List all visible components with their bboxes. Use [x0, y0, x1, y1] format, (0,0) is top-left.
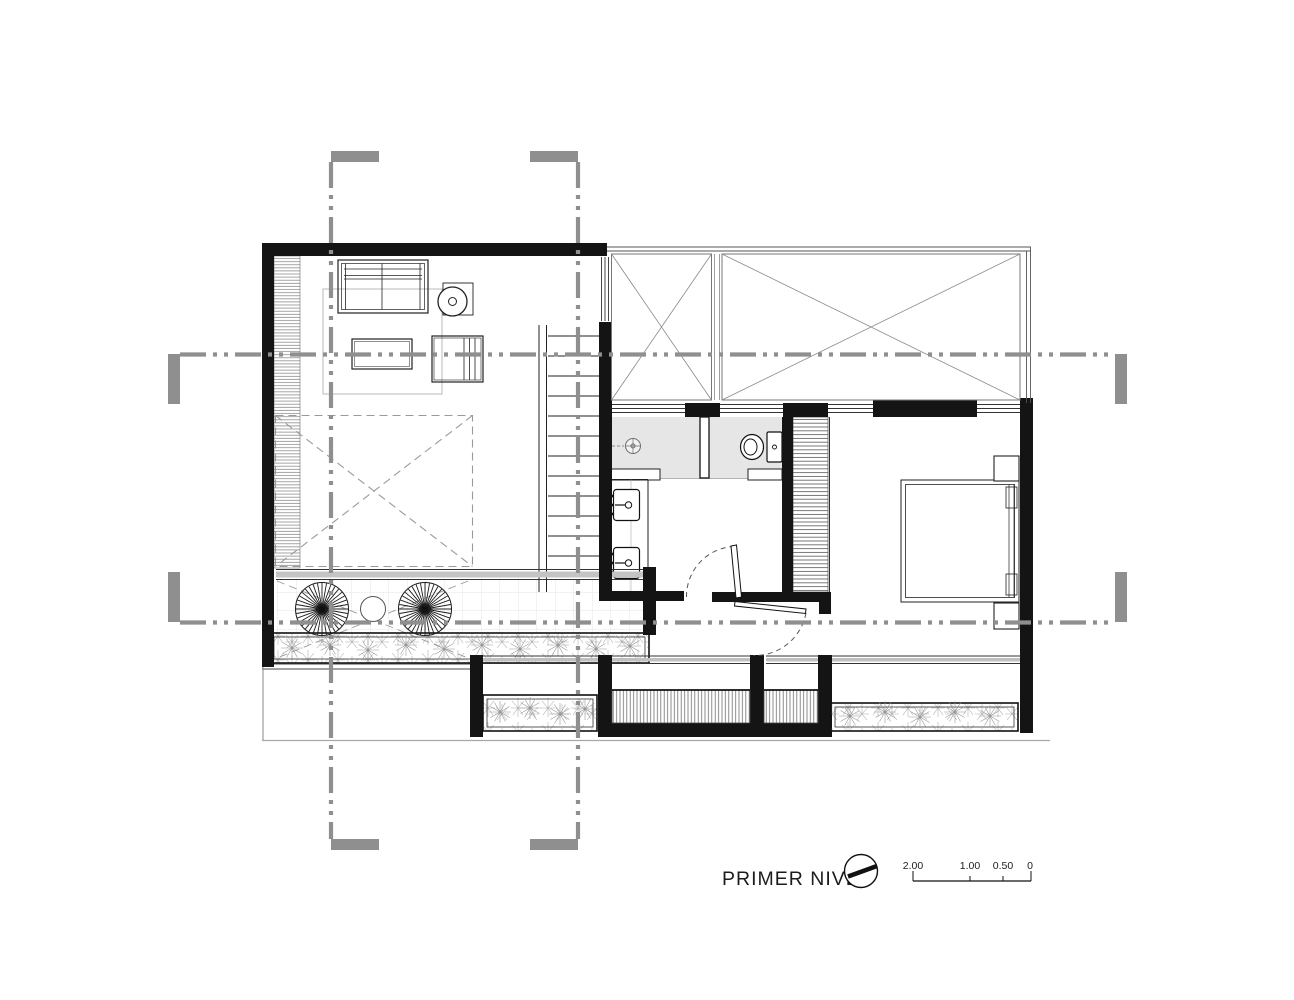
scale-label-0: 0 — [1027, 860, 1033, 872]
bed — [901, 480, 1019, 602]
compass-needle-icon — [845, 855, 878, 888]
vent-grille-left — [612, 690, 750, 723]
vent-grille-right — [764, 690, 818, 723]
floor-plan-drawing: PRIMER NIVEL 2.00 1.00 0.50 0 — [0, 0, 1294, 1000]
bedroom-door — [735, 602, 807, 656]
bathroom-door — [686, 545, 741, 598]
armchair — [432, 336, 483, 382]
closet-hatch — [793, 417, 828, 592]
shower-partition-wall — [700, 417, 709, 478]
scale-label-05: 0.50 — [993, 860, 1014, 872]
scale-bar: 2.00 1.00 0.50 0 — [903, 860, 1033, 881]
nightstand-top — [994, 456, 1019, 481]
scale-label-1: 1.00 — [960, 860, 981, 872]
side-table-lamp — [438, 283, 473, 316]
planter-right — [831, 701, 1018, 731]
sink-1 — [610, 490, 640, 521]
scale-label-2: 2.00 — [903, 860, 924, 872]
floor-plan-sheet: PRIMER NIVEL 2.00 1.00 0.50 0 — [0, 0, 1294, 1000]
stone-veneer-wall — [274, 256, 300, 568]
void-above-living-dashed — [276, 416, 473, 567]
tree-icon — [296, 583, 349, 636]
void-above-boxes — [607, 247, 1031, 403]
shower-curb-right — [748, 469, 782, 480]
terrace-table — [361, 597, 386, 622]
sofa — [338, 260, 428, 313]
staircase — [539, 325, 599, 592]
nightstand-bottom — [994, 603, 1019, 629]
tree-icon — [399, 583, 452, 636]
shower-curb-left — [609, 469, 660, 480]
